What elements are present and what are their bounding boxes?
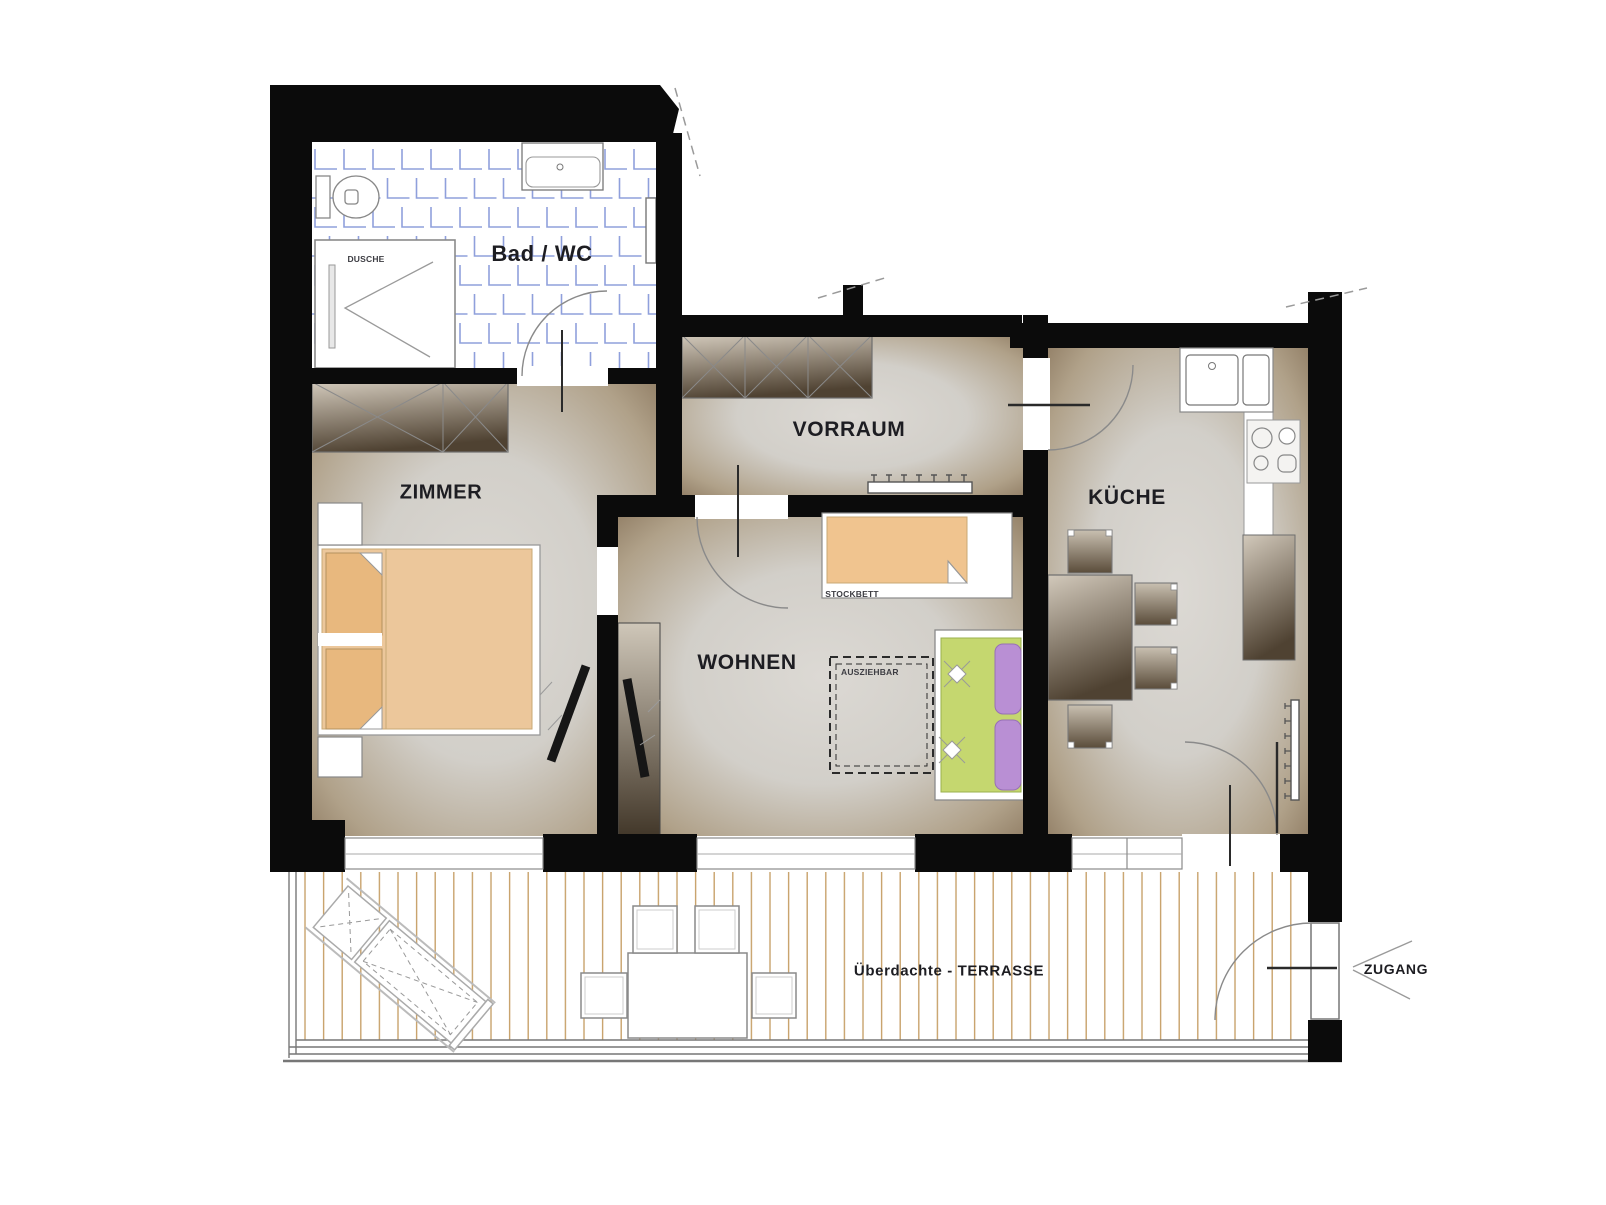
kitchen-sink <box>1180 348 1273 412</box>
label-dusche: DUSCHE <box>347 254 384 264</box>
label-zugang: ZUGANG <box>1364 961 1428 977</box>
wall-top <box>270 85 679 142</box>
double-bed <box>318 545 540 735</box>
kitchen-window <box>1072 838 1182 869</box>
label-terrasse: Überdachte - TERRASSE <box>854 963 1044 980</box>
room-label-kueche: KÜCHE <box>1088 486 1166 510</box>
wall-bath-bottom <box>608 368 656 384</box>
terrace-table <box>628 953 747 1038</box>
terrace <box>283 872 1342 1061</box>
terrace-chair <box>581 973 627 1018</box>
roof-edge-lines <box>675 88 1367 307</box>
wall-right <box>1308 292 1342 922</box>
kitchen-cabinet <box>1243 535 1295 660</box>
wall-hallway-kitchen <box>1023 315 1048 361</box>
terrace-chair <box>633 906 677 953</box>
kitchen-table <box>1048 575 1132 700</box>
bedroom-window <box>345 838 543 869</box>
floor-plan: Bad / WC DUSCHE ZIMMER VORRAUM WOHNEN KÜ… <box>0 0 1606 1205</box>
sofa-cushion <box>995 720 1021 790</box>
wall-bottom <box>1280 834 1342 872</box>
wall-bottom <box>915 834 1072 872</box>
floor-plan-drawing <box>0 0 1606 1205</box>
wall-hallway-top <box>656 315 1022 337</box>
room-label-zimmer: ZIMMER <box>400 482 482 505</box>
bedroom-wardrobe <box>312 382 508 452</box>
wall-bedroom-living <box>597 615 618 838</box>
label-ausziehbar: AUSZIEHBAR <box>841 667 899 677</box>
nightstand <box>318 503 362 545</box>
bunk-bed <box>822 513 1012 598</box>
towel-radiator <box>646 198 656 263</box>
toilet <box>316 176 379 218</box>
nightstand <box>318 737 362 777</box>
wall-bottom <box>543 834 697 872</box>
wall-bottom <box>270 820 345 872</box>
room-label-vorraum: VORRAUM <box>793 418 906 442</box>
living-room-window <box>697 838 915 869</box>
wall-left <box>270 85 312 872</box>
wall-kitchen-top <box>1010 323 1308 348</box>
room-label-wohnen: WOHNEN <box>697 651 796 675</box>
room-label-bad-wc: Bad / WC <box>491 241 592 267</box>
wall-bedroom-living <box>597 495 618 547</box>
stove <box>1247 420 1300 483</box>
wall-step <box>843 285 863 317</box>
wall-bath-bottom <box>312 368 517 384</box>
shower <box>315 240 455 368</box>
label-stockbett: STOCKBETT <box>825 589 879 599</box>
washbasin <box>522 143 603 190</box>
terrace-chair <box>752 973 796 1018</box>
kitchen-chair <box>1068 705 1112 748</box>
sofa-cushion <box>995 644 1021 714</box>
terrace-chair <box>695 906 739 953</box>
kitchen-chair <box>1068 530 1112 573</box>
sofa <box>935 630 1025 800</box>
hallway-wardrobe <box>682 335 872 398</box>
wall-right-bottom <box>1308 1020 1342 1062</box>
entrance-door-frame <box>1311 923 1339 1019</box>
